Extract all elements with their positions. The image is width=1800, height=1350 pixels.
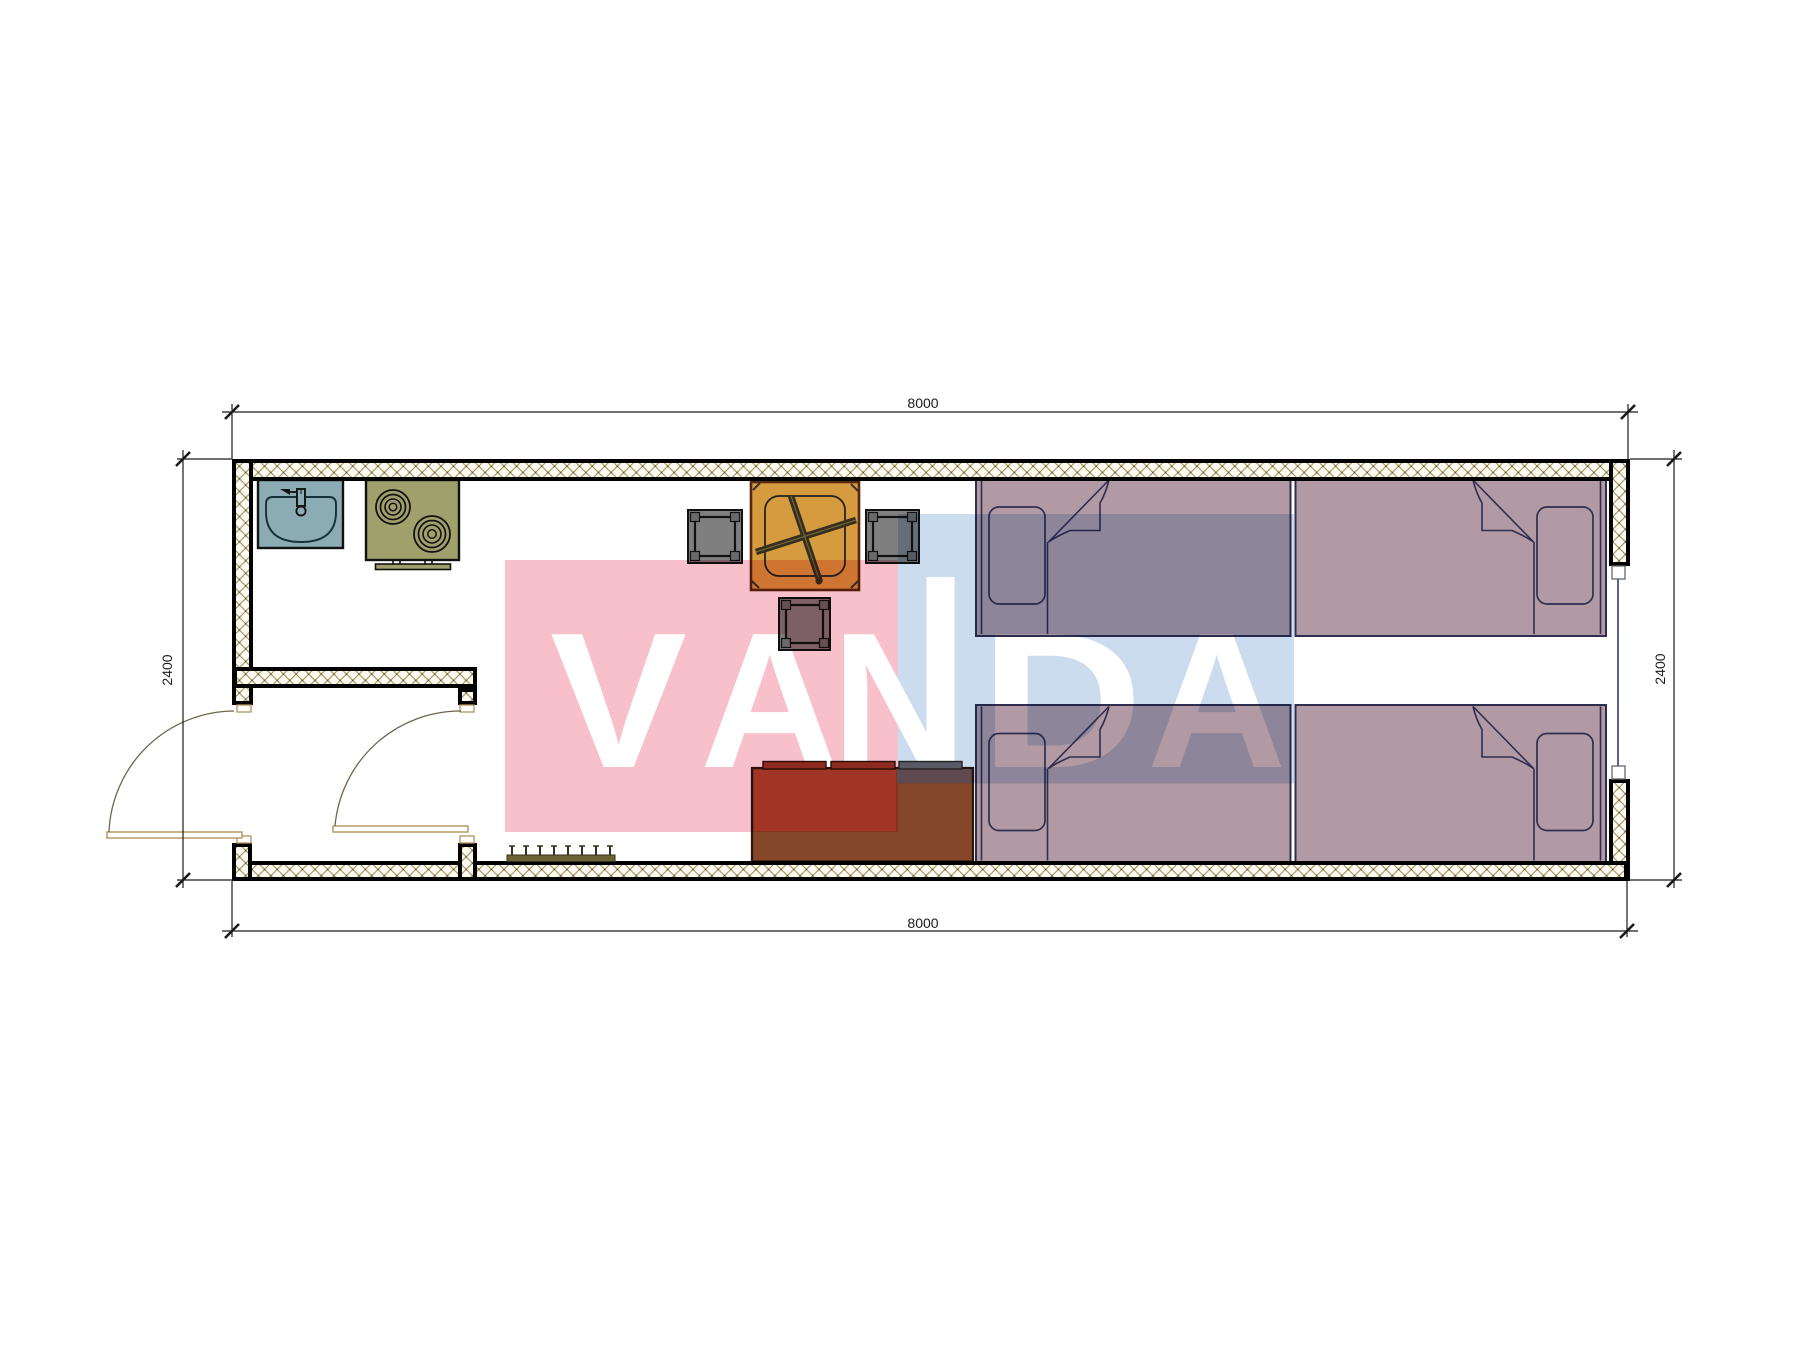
svg-text:2400: 2400 — [1652, 653, 1668, 684]
svg-text:8000: 8000 — [907, 915, 938, 931]
svg-text:2400: 2400 — [159, 654, 175, 685]
svg-text:8000: 8000 — [907, 395, 938, 411]
svg-text:V: V — [550, 592, 687, 808]
